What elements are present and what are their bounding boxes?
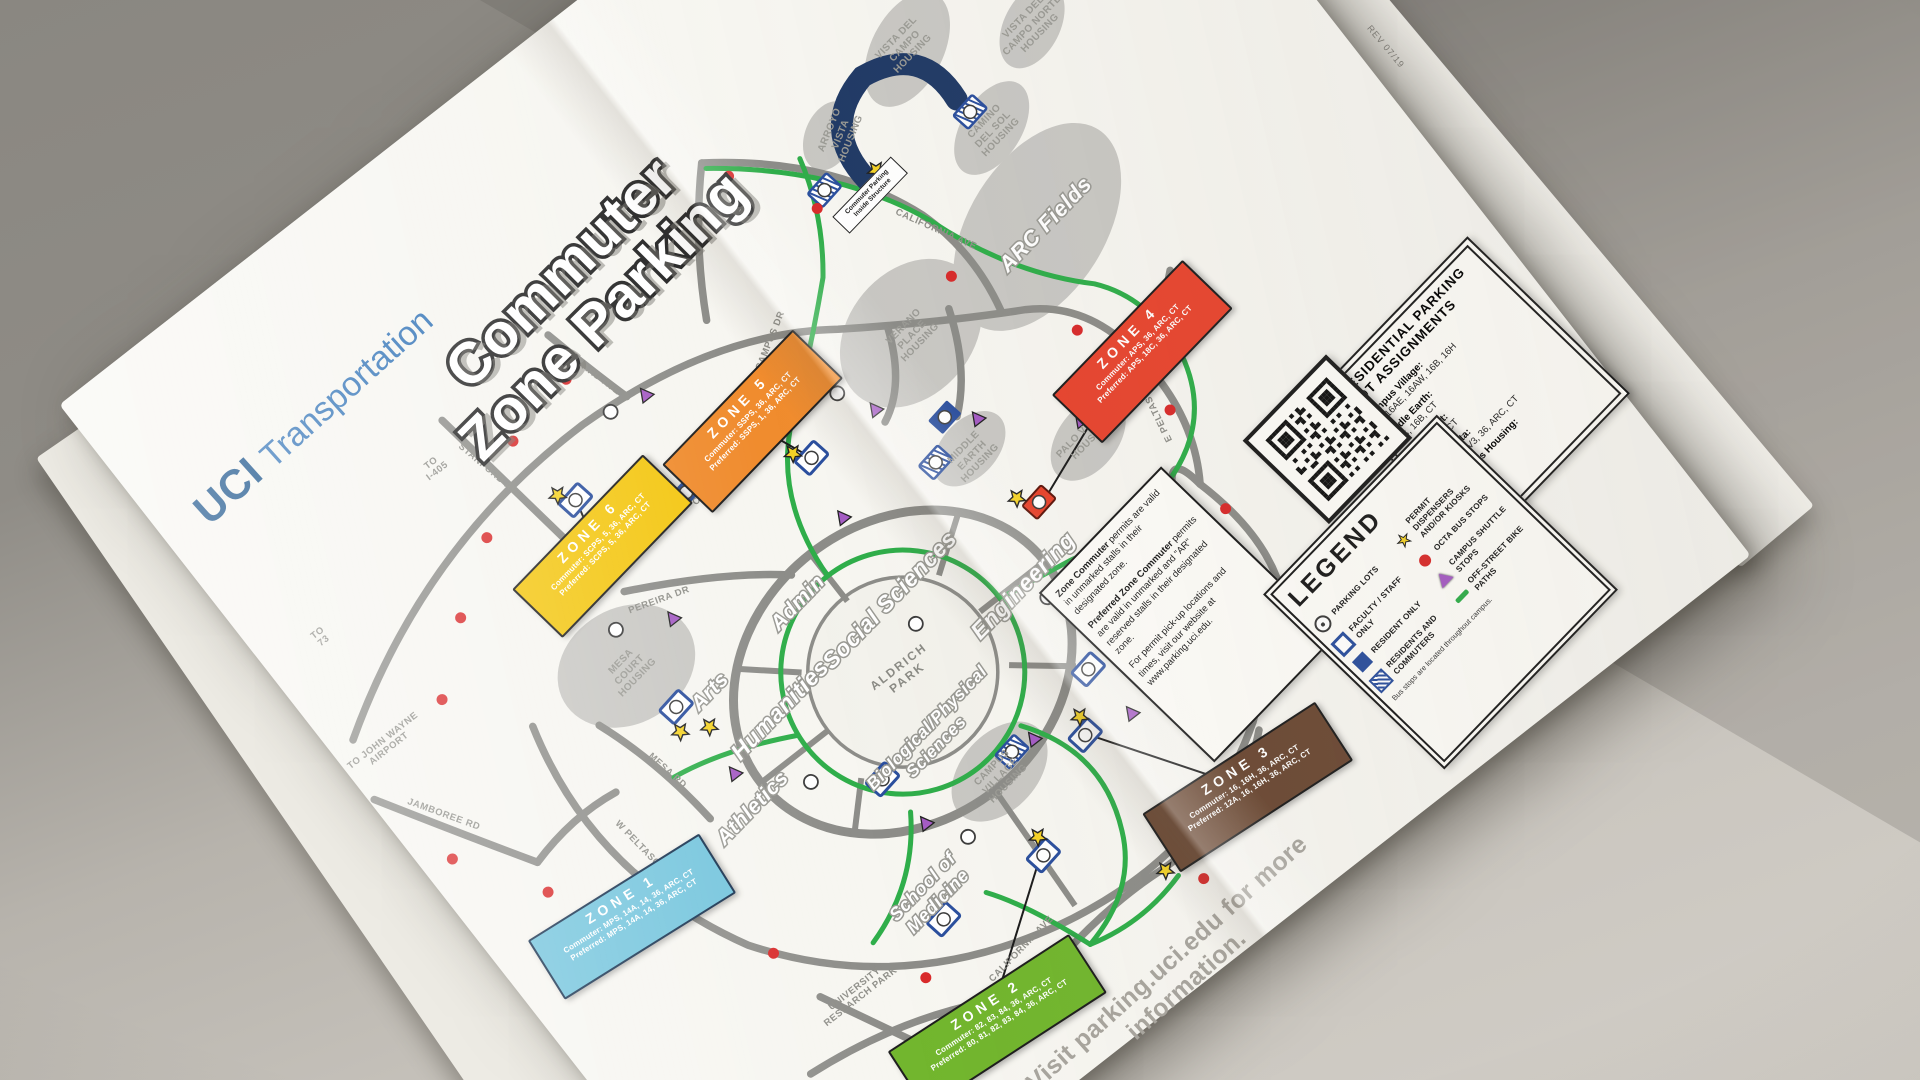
housing-label: MIDDLE EARTH HOUSING [943,426,1002,486]
zone-label-6: ZONE 6Commuter: SCPS, 5, 36, ARC, CTPref… [512,454,693,638]
zone-name: ZONE 5 [670,337,806,477]
zone-label-1: ZONE 1Commuter: MPS, 14A, 14, 36, ARC, C… [528,833,736,999]
area-label: Social Sciences [817,525,962,674]
zone-label-5: ZONE 5Commuter: SSPS, 36, ARC, CTPreferr… [662,329,843,513]
housing-label: CAMPUS VILLAGE HOUSING [971,746,1030,806]
area-label: Humanities [725,654,834,766]
housing-label: MESA COURT HOUSING [600,640,659,700]
area-label: Athletics [712,766,794,850]
photo-backdrop: REV 07/19 Social SciencesAdminEngineerin… [0,0,1920,1080]
bike-path-icon [1449,584,1474,609]
area-label: ARC Fields [994,171,1098,277]
revision-text: REV 07/19 [1366,23,1407,70]
resident-only-icon [1349,650,1374,675]
octa-stop-icon [1412,547,1437,572]
road-label: CALIFORNIA AVE [893,208,977,253]
road-label: TO JOHN WAYNE AIRPORT [346,711,427,781]
zone-line: Commuter: MPS, 14A, 14, 36, ARC, CT [544,856,712,967]
housing-label: CAMINO DEL SOL HOUSING [963,100,1022,160]
area-label: Arts [686,668,734,716]
residents-commuters-icon [1368,668,1393,693]
housing-label: ARROYO VISTA HOUSING [815,105,866,164]
road-label: PEREIRA DR [627,585,691,617]
housing-label: VISTA DEL CAMPO HOUSING [873,14,936,77]
housing-label: VISTA DEL CAMPO NORTE HOUSING [992,0,1072,66]
zone-label-4: ZONE 4Commuter: APS, 36, ARC, CTPreferre… [1052,260,1233,444]
zone-name: ZONE 6 [520,462,656,602]
housing-label: VERANO PLACE HOUSING [883,305,942,365]
road-label: UNIVERSITY RESEARCH PARK [816,958,900,1030]
zone-name: ZONE 1 [535,841,707,958]
area-label: School of Medicine [874,836,988,951]
road-label: TO 73 [309,625,333,650]
zone-name: ZONE 4 [1060,268,1196,408]
zone-line: Commuter: SCPS, 5, 36, ARC, CT [533,474,664,609]
zone-line: Commuter: SSPS, 36, ARC, CT [683,349,814,484]
parking-lot-icon [1310,612,1335,637]
shuttle-stop-icon [1431,566,1456,591]
zone-line: Commuter: APS, 36, ARC, CT [1072,280,1203,415]
faculty-staff-icon [1331,632,1356,657]
area-label: Admin [766,570,830,635]
parking-map-brochure: REV 07/19 Social SciencesAdminEngineerin… [59,0,1750,1080]
permit-dispenser-icon: ★ [1391,527,1416,552]
road-label: JAMBOREE RD [406,797,482,833]
road-label: MESA RD [646,752,688,792]
area-label: ALDRICH PARK [867,640,938,704]
